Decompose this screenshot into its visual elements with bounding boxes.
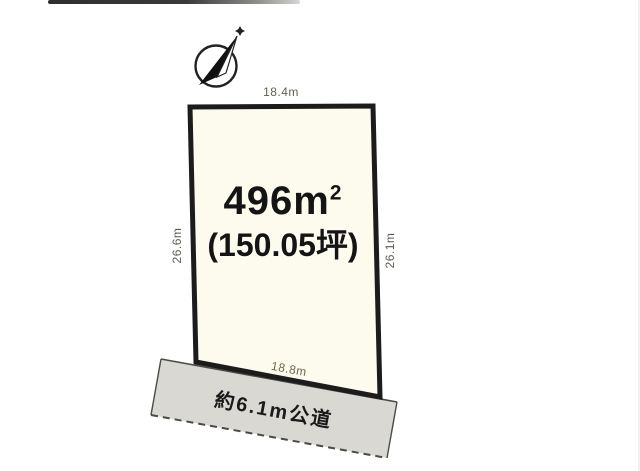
dim-left-label: 26.6m: [170, 218, 183, 273]
area-exponent: 2: [330, 182, 343, 205]
dim-right-label: 26.1m: [383, 223, 396, 278]
area-label: 496m2: [190, 180, 376, 222]
land-plot-diagram: 18.4m 26.6m 26.1m 18.8m 496m2 (150.05坪) …: [0, 0, 640, 471]
plot-area-block: 496m2 (150.05坪): [190, 180, 376, 264]
dim-top-label: 18.4m: [248, 85, 314, 99]
area-unit: m: [293, 179, 330, 223]
area-value: 496: [224, 179, 294, 223]
tsubo-label: (150.05坪): [190, 226, 376, 264]
